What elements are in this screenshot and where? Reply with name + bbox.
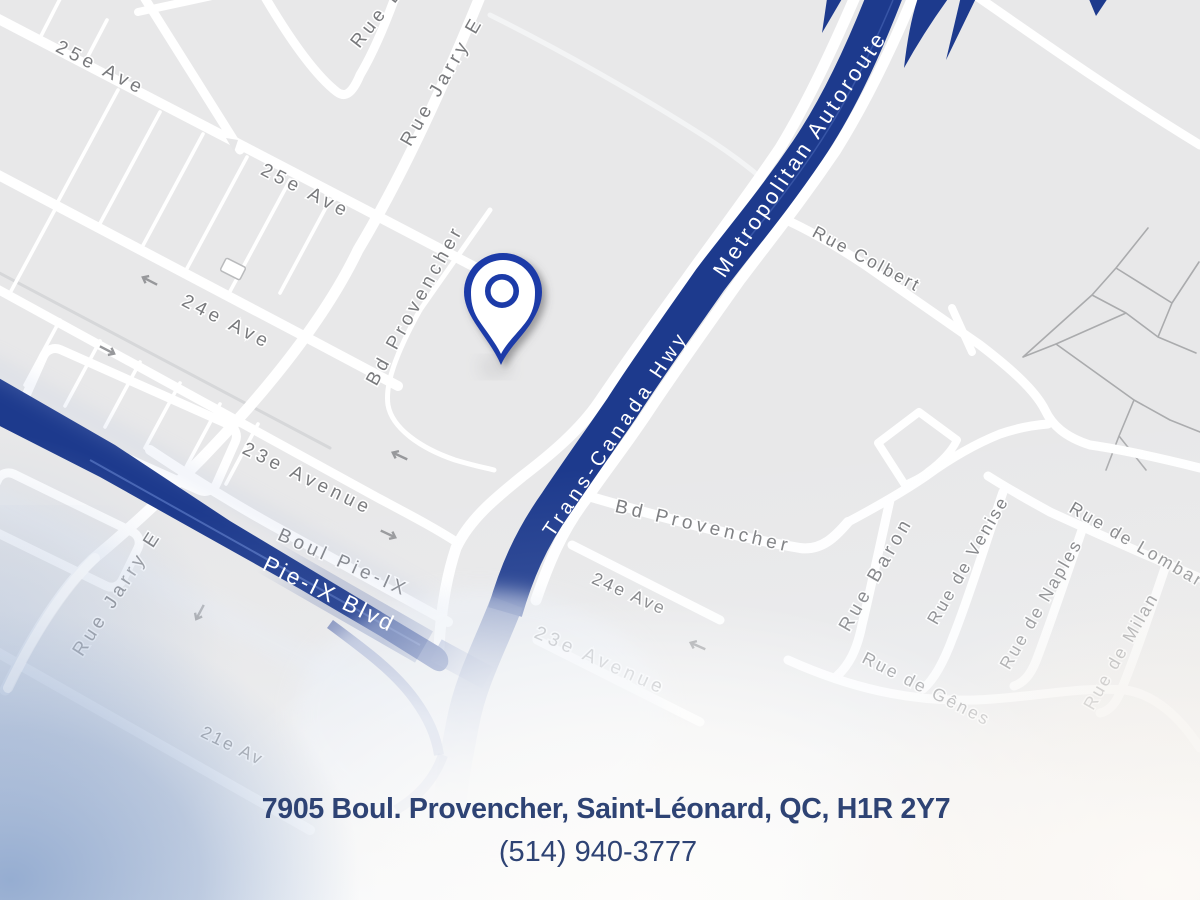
svg-text:(514) 940-3777: (514) 940-3777	[499, 836, 697, 868]
svg-text:7905 Boul. Provencher, Saint-L: 7905 Boul. Provencher, Saint-Léonard, QC…	[262, 793, 951, 825]
